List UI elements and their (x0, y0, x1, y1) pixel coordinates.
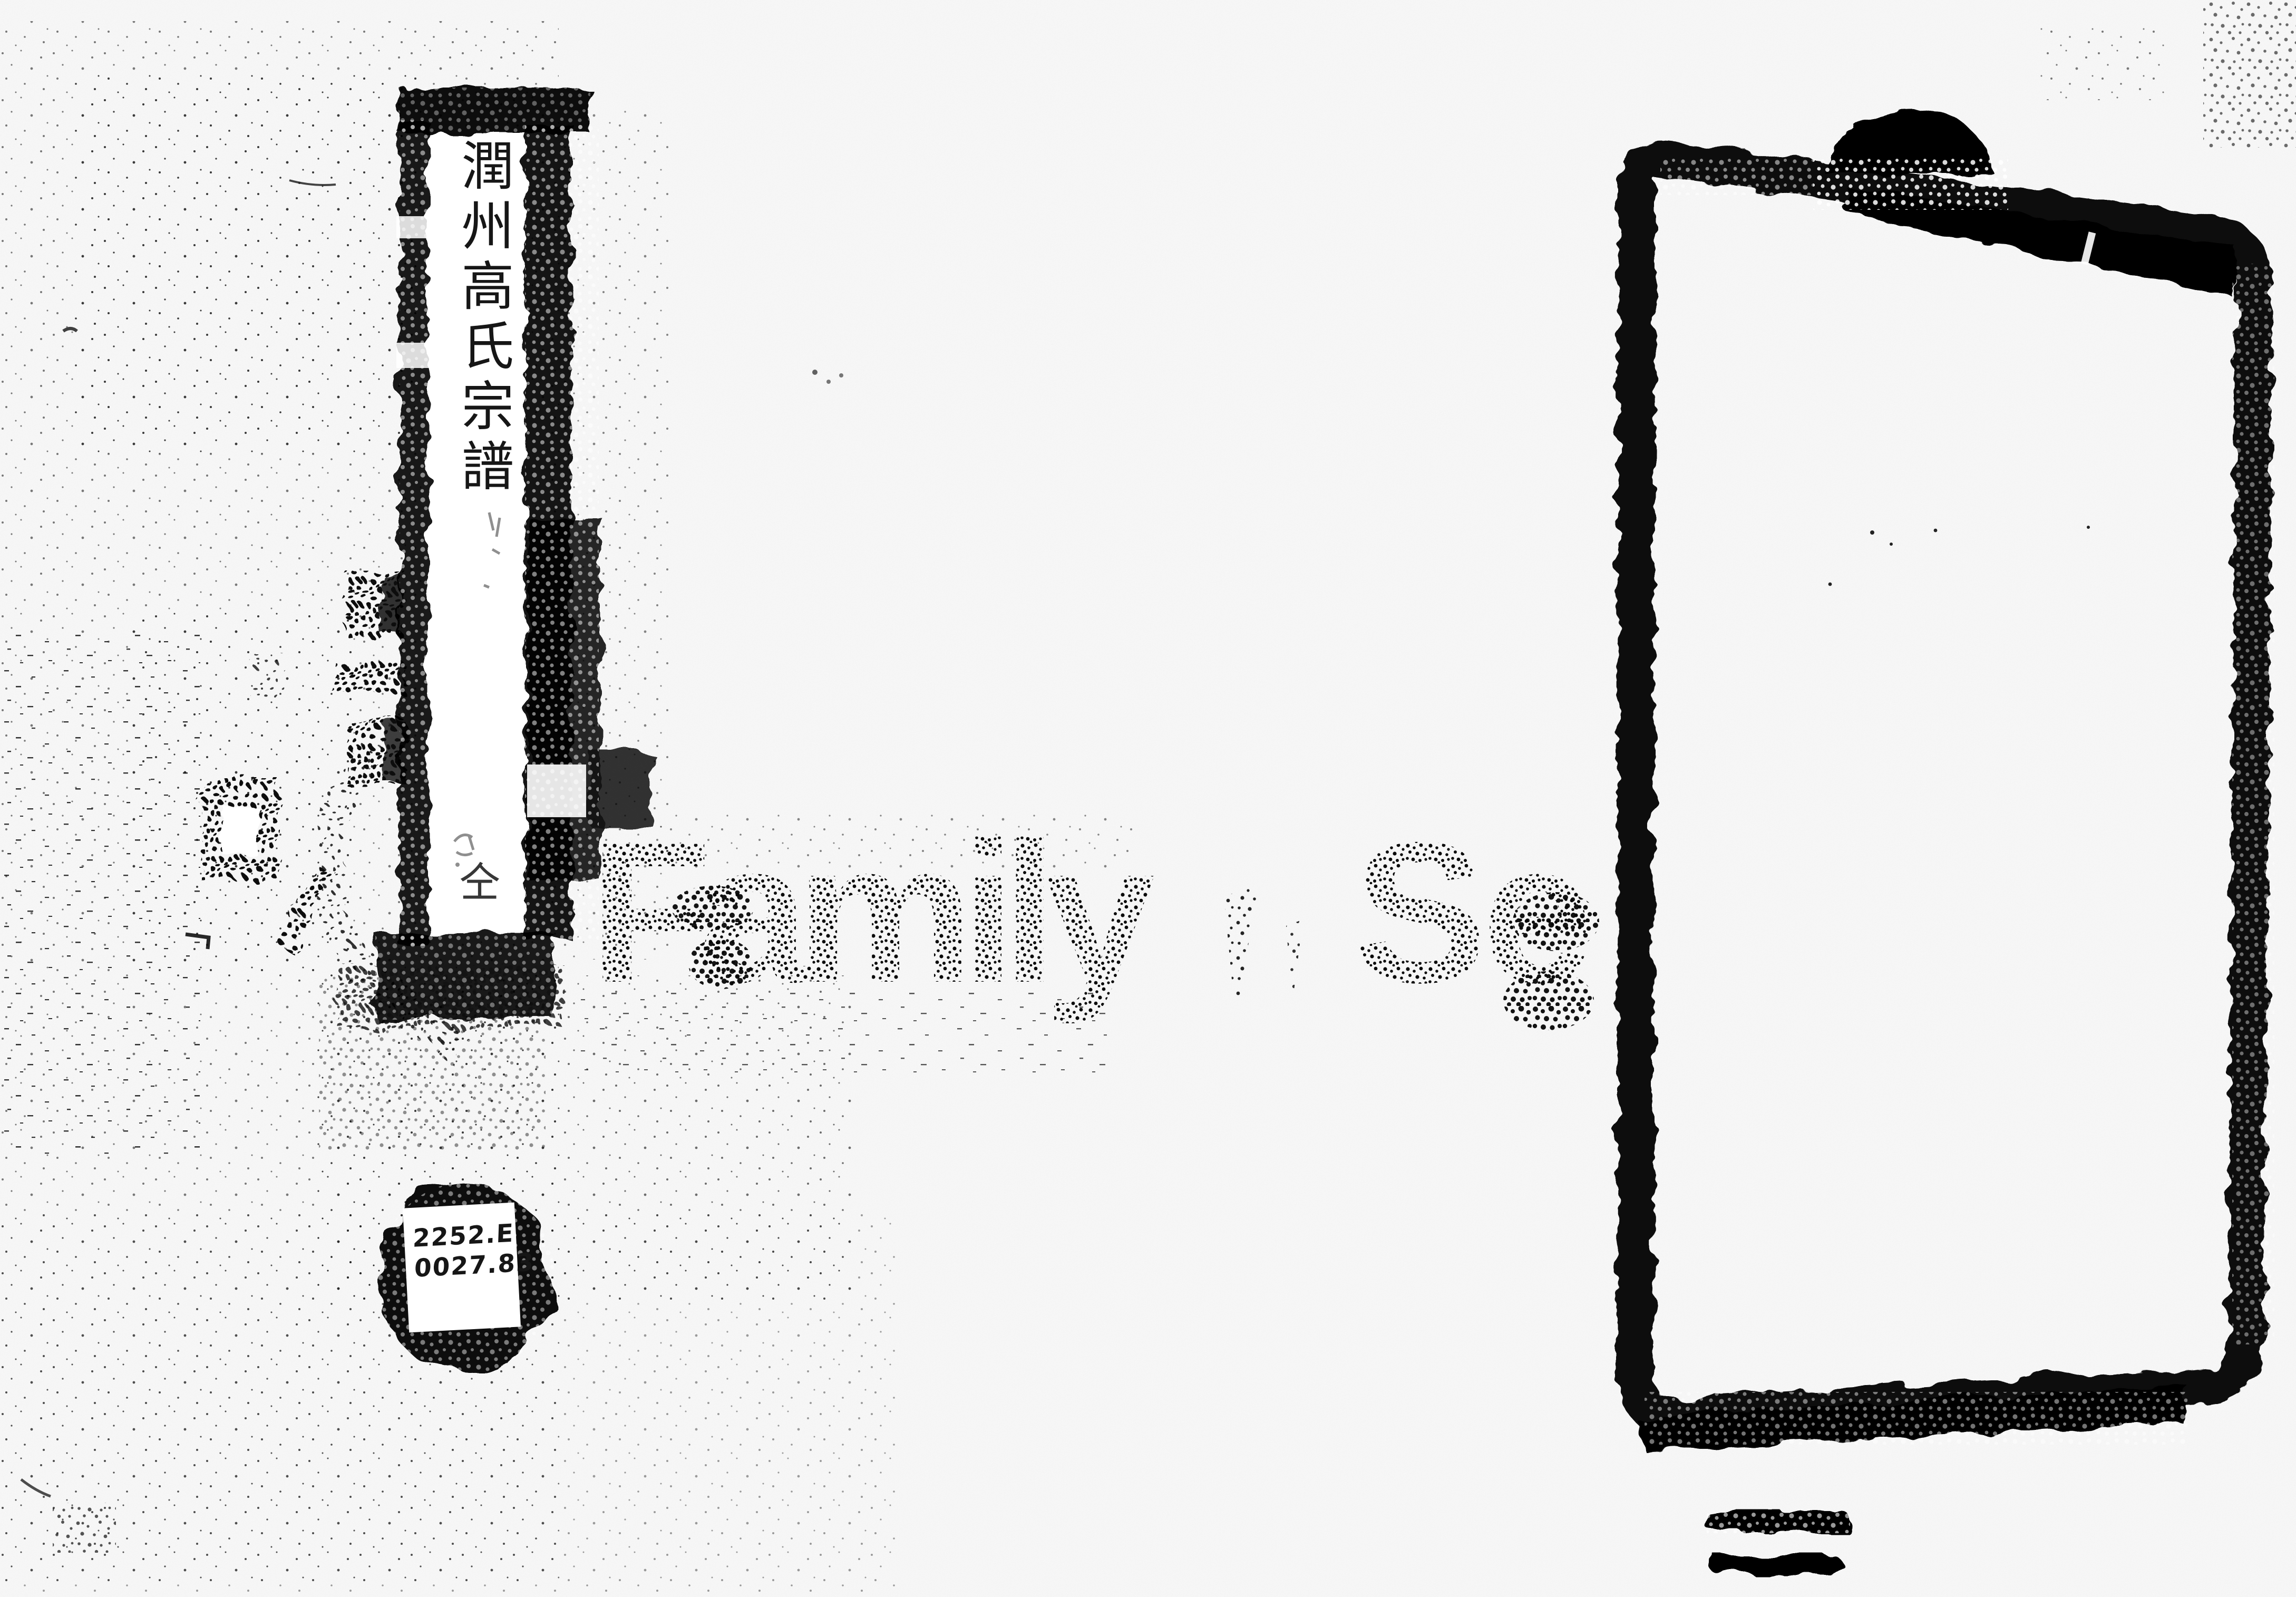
scan-artwork: Family Se (0, 0, 2296, 1597)
scanned-genealogy-page: Family Se (0, 0, 2296, 1597)
familysearch-watermark: Family Se (589, 800, 1599, 1030)
call-number-sticker: 2252.E 0027.83 (403, 1203, 521, 1333)
call-number-line-2: 0027.83 (414, 1248, 518, 1284)
spine-annotation-character: 仝 (449, 860, 497, 902)
spine-title-vertical-text: 潤州高氏宗譜 (446, 138, 509, 499)
footage-mark-bottom-bar (1710, 1554, 1842, 1575)
